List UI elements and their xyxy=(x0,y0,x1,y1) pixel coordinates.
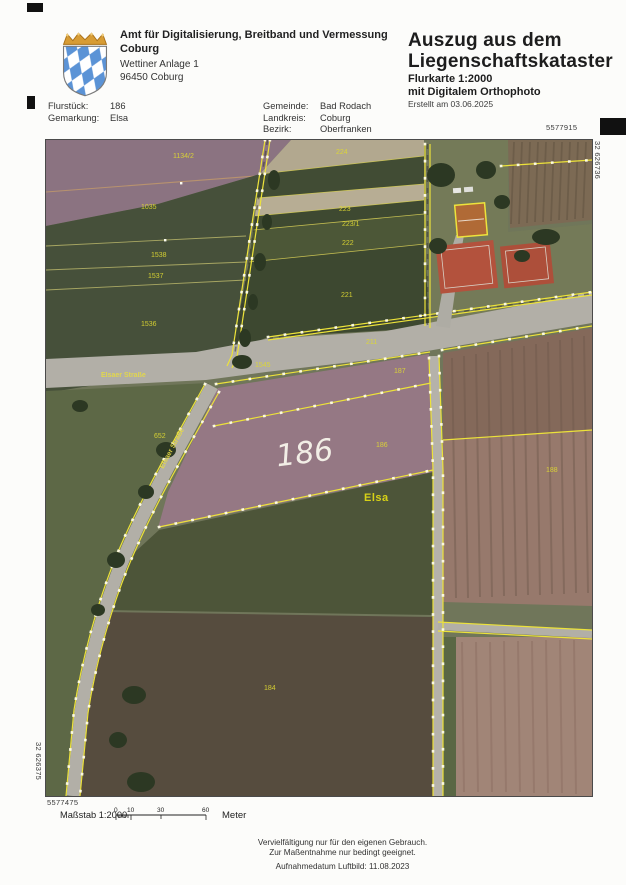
parcel-info-right: Gemeinde:Bad Rodach Landkreis:Coburg Bez… xyxy=(263,101,372,136)
parcel-info-left: Flurstück:186 Gemarkung:Elsa xyxy=(48,101,128,124)
registration-mark xyxy=(600,118,626,135)
landkreis-value: Coburg xyxy=(320,113,351,123)
agency-block: Amt für Digitalisierung, Breitband und V… xyxy=(120,29,388,84)
gemarkung-value: Elsa xyxy=(110,113,128,123)
agency-name-line1: Amt für Digitalisierung, Breitband und V… xyxy=(120,29,388,43)
photo-date: Aufnahmedatum Luftbild: 11.08.2023 xyxy=(235,862,450,872)
coordinate-north-top: 5577915 xyxy=(546,123,577,132)
disclaimer-line2: Zur Maßentnahme nur bedingt geeignet. xyxy=(235,848,450,858)
map-labels-layer: 1134/21035153815371536224223223/12222212… xyxy=(46,140,592,796)
document-title-line2: Liegenschaftskataster xyxy=(408,51,613,72)
cadastre-extract-page: Amt für Digitalisierung, Breitband und V… xyxy=(0,0,626,885)
parcel-label: 1538 xyxy=(151,252,167,259)
scale-bar: 0 10 30 60 xyxy=(113,803,225,828)
registration-mark xyxy=(27,96,35,109)
parcel-label: 223/1 xyxy=(342,221,360,228)
coordinate-east-left: 32 626375 xyxy=(34,742,43,780)
svg-text:60: 60 xyxy=(202,807,210,814)
registration-mark xyxy=(27,3,43,12)
gemeinde-value: Bad Rodach xyxy=(320,101,371,111)
landkreis-label: Landkreis: xyxy=(263,113,320,125)
street-label: Elsaer Straße xyxy=(101,372,146,379)
parcel-label: 223 xyxy=(339,206,351,213)
bavaria-coat-of-arms-icon xyxy=(57,30,113,103)
gemeinde-label: Gemeinde: xyxy=(263,101,320,113)
disclaimer-block: Vervielfältigung nur für den eigenen Geb… xyxy=(235,838,450,872)
parcel-label: 186 xyxy=(274,433,335,475)
parcel-label: 1536 xyxy=(141,321,157,328)
orthophoto-map: 1134/21035153815371536224223223/12222212… xyxy=(45,139,593,797)
agency-address-street: Wettiner Anlage 1 xyxy=(120,59,388,72)
parcel-label: 222 xyxy=(342,240,354,247)
parcel-label: 1537 xyxy=(148,273,164,280)
subtitle-orthophoto: mit Digitalem Orthophoto xyxy=(408,86,613,99)
parcel-label: 184 xyxy=(264,685,276,692)
bezirk-value: Oberfranken xyxy=(320,124,372,134)
svg-text:0: 0 xyxy=(114,807,118,814)
disclaimer-line1: Vervielfältigung nur für den eigenen Geb… xyxy=(235,838,450,848)
gemarkung-label: Gemarkung: xyxy=(48,113,110,125)
parcel-label: 186 xyxy=(376,442,388,449)
parcel-label: 211 xyxy=(366,339,377,346)
parcel-label: 1035 xyxy=(141,204,157,211)
parcel-label: 221 xyxy=(341,292,353,299)
flurstueck-label: Flurstück: xyxy=(48,101,110,113)
parcel-label: 188 xyxy=(546,467,558,474)
bezirk-label: Bezirk: xyxy=(263,124,320,136)
coordinate-east-right: 32 626736 xyxy=(593,141,602,179)
parcel-label: 224 xyxy=(336,149,348,156)
title-block: Auszug aus dem Liegenschaftskataster Flu… xyxy=(408,30,613,99)
parcel-label: 187 xyxy=(394,368,406,375)
svg-text:30: 30 xyxy=(157,807,165,814)
parcel-label: 1134/2 xyxy=(173,153,194,160)
agency-name-line2: Coburg xyxy=(120,43,388,57)
parcel-label: 652 xyxy=(154,433,166,440)
document-title-line1: Auszug aus dem xyxy=(408,30,613,51)
coordinate-north-bottom: 5577475 xyxy=(47,798,78,807)
created-date: Erstellt am 03.06.2025 xyxy=(408,99,493,109)
scale-unit-label: Meter xyxy=(222,810,246,821)
flurstueck-value: 186 xyxy=(110,101,126,111)
agency-address-city: 96450 Coburg xyxy=(120,72,388,85)
place-label: Elsa xyxy=(364,492,389,504)
parcel-label: 1545 xyxy=(255,362,271,369)
subtitle-scale: Flurkarte 1:2000 xyxy=(408,73,613,86)
svg-text:10: 10 xyxy=(127,807,135,814)
